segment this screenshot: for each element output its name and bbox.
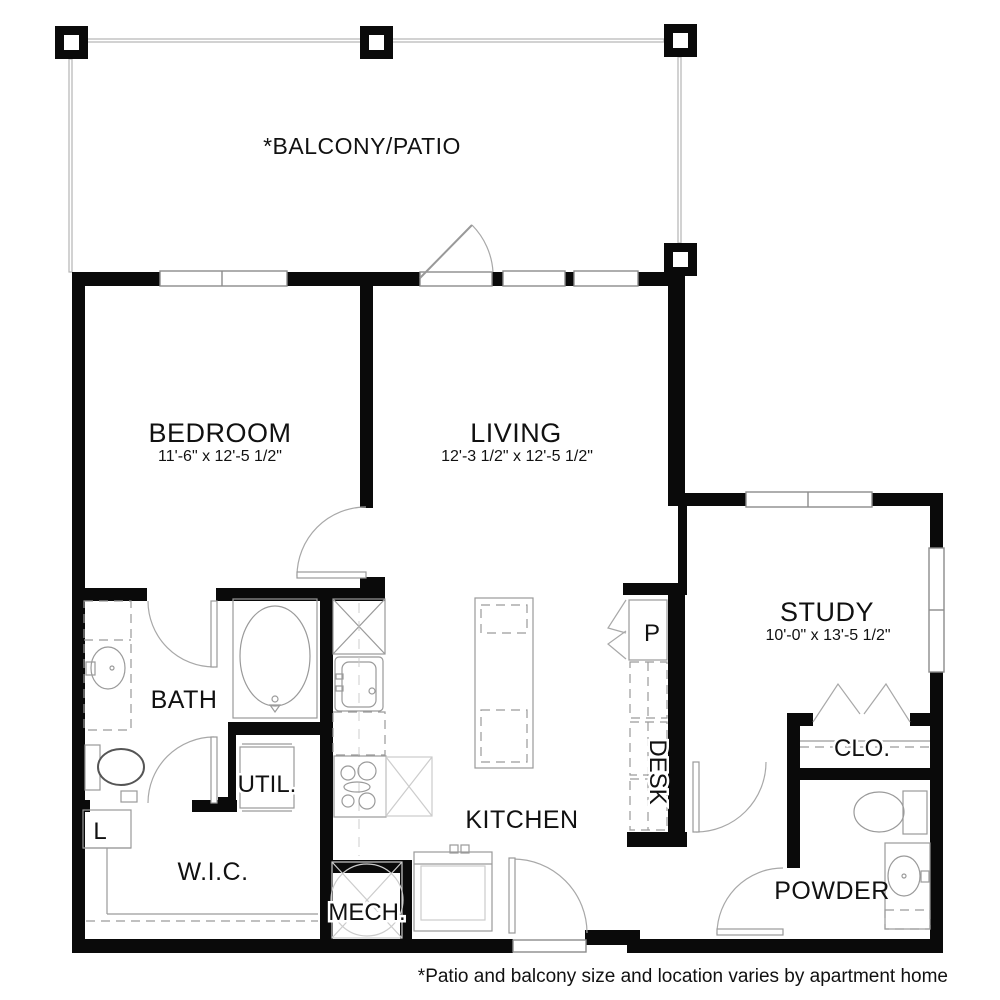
balcony-door-sill — [420, 272, 492, 286]
living-dims: 12'-3 1/2" x 12'-5 1/2" — [441, 448, 593, 465]
study-label: STUDY — [780, 597, 874, 627]
bedroom-window — [160, 271, 287, 286]
wall-top-bedroom-left — [72, 272, 160, 286]
bath-toilet — [85, 745, 144, 802]
pantry-bifold-door — [608, 600, 626, 659]
wall-top-center — [287, 272, 420, 286]
wall-util-left — [228, 722, 236, 807]
bedroom-label: BEDROOM — [148, 418, 291, 448]
study-window-top — [746, 492, 872, 507]
wall-living-right — [668, 272, 685, 506]
washer-dryer — [414, 845, 492, 931]
pantry-label: P — [644, 620, 660, 647]
closet-bifold-doors — [813, 684, 910, 722]
balcony-edge-right — [678, 57, 681, 243]
powder-label: POWDER — [774, 877, 890, 905]
wall-desk-cap — [627, 832, 687, 847]
floor-plan: *BALCONY/PATIO BEDROOM 11'-6" x 12'-5 1/… — [0, 0, 1000, 1000]
balcony-column — [55, 26, 88, 59]
bath-door — [148, 601, 217, 667]
linen-label: L — [93, 818, 106, 845]
kitchen-counter — [333, 603, 385, 856]
entry-door — [509, 858, 587, 933]
powder-toilet — [854, 791, 927, 834]
wall-bottom-right — [627, 939, 943, 953]
wic-label: W.I.C. — [177, 858, 248, 886]
balcony-door — [420, 225, 493, 278]
wall-bedroom-bottom-left — [72, 588, 147, 601]
entry-door-sill — [513, 940, 586, 952]
wall-util-top — [228, 722, 323, 735]
balcony-column — [664, 24, 697, 57]
bath-vanity-sink — [84, 601, 131, 730]
balcony-label: *BALCONY/PATIO — [263, 133, 461, 159]
living-label: LIVING — [470, 418, 562, 448]
wall-study-top-left — [685, 493, 746, 506]
powder-door — [717, 868, 783, 935]
util-label: UTIL. — [238, 771, 297, 798]
footer-note: *Patio and balcony size and location var… — [418, 966, 948, 987]
wall-study-right-upper — [930, 493, 943, 548]
wall-mullion-2 — [565, 272, 574, 286]
wall-bedroom-living-divider — [360, 272, 373, 508]
mech-label: MECH. — [328, 899, 405, 926]
wall-clo-stub-right — [910, 713, 930, 726]
desk-label: DESK — [644, 739, 671, 804]
floor-plan-drawing: *BALCONY/PATIO BEDROOM 11'-6" x 12'-5 1/… — [0, 0, 1000, 1000]
dishwasher-ghost — [386, 757, 432, 816]
wall-kitchen-left — [320, 601, 333, 939]
wall-right-exterior — [930, 672, 943, 953]
bedroom-dims: 11'-6" x 12'-5 1/2" — [158, 448, 282, 465]
balcony-edge-left — [69, 59, 72, 272]
balcony-column — [360, 26, 393, 59]
kitchen-label: KITCHEN — [465, 806, 578, 834]
balcony-column — [664, 243, 697, 276]
bath-label: BATH — [151, 686, 218, 714]
wall-clo-bottom — [787, 768, 930, 780]
living-window-1 — [503, 271, 565, 286]
wall-living-right-thin — [678, 506, 687, 585]
bathtub — [233, 599, 317, 718]
clo-label: CLO. — [834, 735, 890, 762]
study-dims: 10'-0" x 13'-5 1/2" — [765, 627, 890, 644]
bedroom-door — [297, 507, 366, 578]
wall-powder-left — [787, 713, 800, 868]
bath-wic-door — [148, 737, 217, 803]
kitchen-range — [334, 756, 386, 817]
wall-mullion-1 — [492, 272, 503, 286]
living-window-2 — [574, 271, 638, 286]
wall-bottom-left — [72, 939, 513, 953]
kitchen-island — [475, 598, 533, 768]
wall-clo-stub-left — [787, 713, 813, 726]
study-door — [693, 762, 766, 832]
powder-vanity-sink — [885, 843, 930, 929]
wall-left-exterior — [72, 272, 85, 953]
